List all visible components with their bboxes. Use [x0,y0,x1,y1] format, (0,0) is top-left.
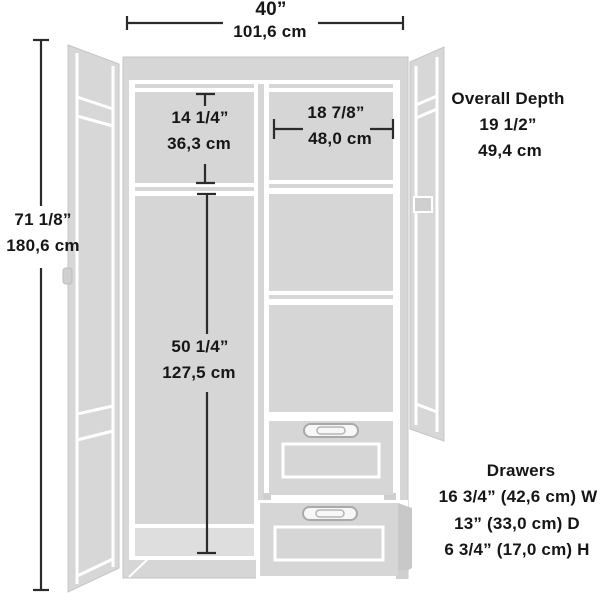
drawer-bottom-handle [303,507,357,520]
center-divider [258,84,264,560]
drawer-bottom [256,500,412,579]
width-cm-label: 101,6 cm [233,23,306,42]
right-door [410,47,444,441]
drawers-depth-label: 13” (33,0 cm) D [454,515,580,534]
height-cm-label: 180,6 cm [6,237,79,256]
hanging-cm-label: 127,5 cm [162,364,235,383]
overall-depth-cm-label: 49,4 cm [478,142,542,161]
right-middle-compartment [269,194,393,291]
height-dimension-line [33,40,49,590]
overall-depth-title: Overall Depth [451,90,564,109]
width-inches-label: 40” [255,0,286,21]
upper-right-inches-label: 18 7/8” [307,104,364,123]
overall-depth-inches-label: 19 1/2” [479,116,536,135]
drawers-height-label: 6 3/4” (17,0 cm) H [444,541,589,560]
left-shelf-edge [135,187,254,191]
drawer-top [269,421,393,495]
upper-left-inches-label: 14 1/4” [171,109,228,128]
right-door-handle [414,197,432,212]
cabinet-floor [135,528,254,556]
drawers-title: Drawers [487,462,556,481]
hanging-compartment [135,196,254,524]
left-door-handle [63,268,72,284]
drawer-top-handle [304,424,358,437]
left-door [63,45,119,592]
right-lower-compartment [269,305,393,412]
hanging-inches-label: 50 1/4” [171,338,228,357]
upper-right-cm-label: 48,0 cm [308,130,372,149]
drawers-width-label: 16 3/4” (42,6 cm) W [439,488,598,507]
wardrobe-dimensions-diagram: 40” 101,6 cm 71 1/8” 180,6 cm 14 1/4” 36… [0,0,600,600]
upper-left-cm-label: 36,3 cm [167,135,231,154]
height-inches-label: 71 1/8” [14,211,71,230]
